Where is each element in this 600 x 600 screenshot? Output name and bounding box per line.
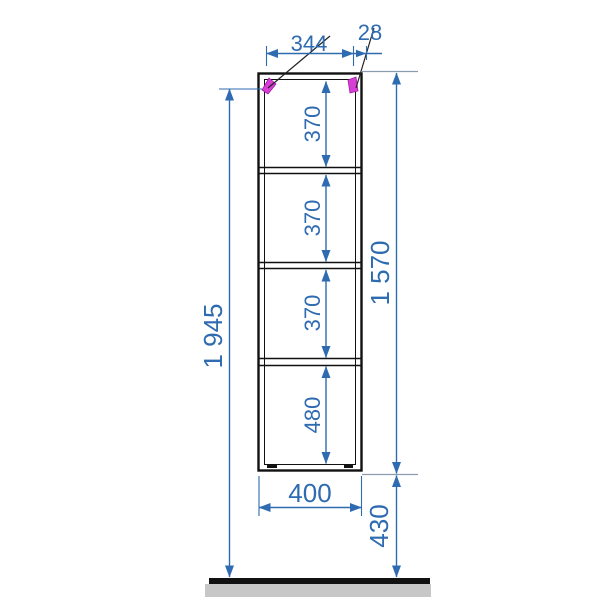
ground-shadow: [205, 584, 431, 597]
dim-label-floor-clearance: 430: [364, 504, 394, 547]
dim-label-frame-height: 1 570: [365, 240, 395, 305]
dim-label-outer-width: 400: [288, 478, 331, 508]
ground-line: [205, 578, 431, 597]
dim-label-mounting-height: 1 945: [198, 303, 228, 368]
bottom-fitting-right: [344, 465, 353, 469]
dim-label-compartment-4: 480: [300, 397, 325, 434]
drawing-canvas: 344 28 370 370 370 480 1 570 1 945 430 4…: [0, 0, 600, 600]
floor-line: [209, 578, 430, 584]
dim-label-compartment-1: 370: [300, 106, 325, 143]
technical-drawing: 344 28 370 370 370 480 1 570 1 945 430 4…: [0, 0, 600, 600]
bottom-fitting-left: [267, 465, 277, 469]
dim-label-inner-width: 344: [291, 31, 328, 56]
dim-label-panel-thickness: 28: [358, 20, 382, 45]
dim-label-compartment-3: 370: [300, 295, 325, 332]
dim-label-compartment-2: 370: [300, 200, 325, 237]
